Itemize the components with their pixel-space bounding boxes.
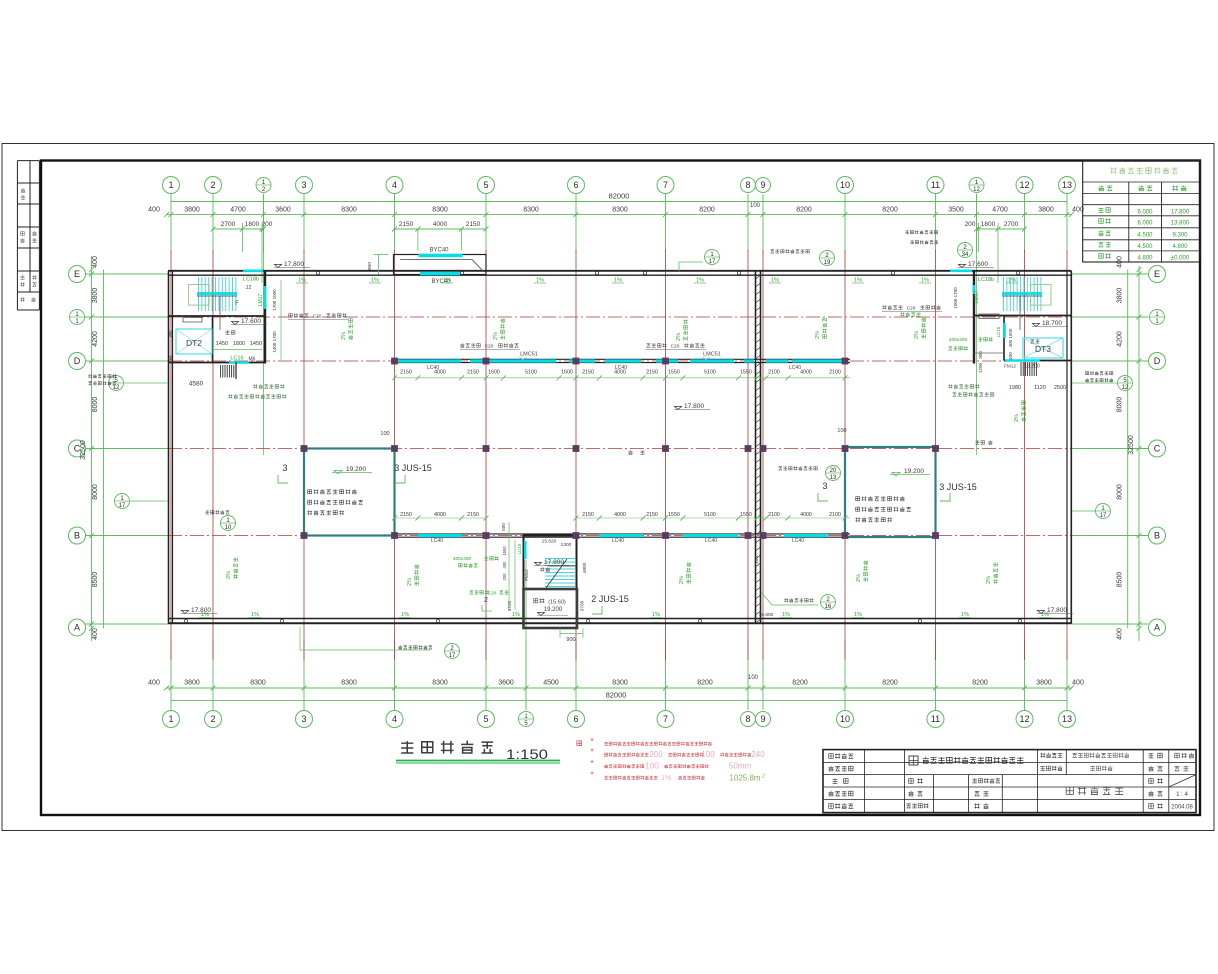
svg-text:A: A [1154, 623, 1160, 633]
svg-text:3800: 3800 [1117, 288, 1124, 304]
svg-text:4.800: 4.800 [1172, 244, 1188, 250]
svg-text:17: 17 [119, 503, 126, 509]
svg-text:1%: 1% [921, 278, 929, 284]
svg-text:19.200: 19.200 [544, 607, 563, 613]
svg-text:8300: 8300 [250, 680, 266, 687]
svg-text:1800: 1800 [233, 341, 245, 347]
svg-text:4.800: 4.800 [1137, 256, 1153, 262]
svg-text:B: B [1154, 531, 1160, 541]
svg-text:LC18b: LC18b [978, 277, 994, 283]
svg-text:8300: 8300 [612, 680, 628, 687]
svg-text:1%: 1% [961, 612, 969, 618]
svg-text:4.500: 4.500 [1137, 233, 1153, 239]
svg-text:2150: 2150 [582, 512, 594, 518]
svg-text:DT3: DT3 [1035, 344, 1051, 354]
svg-text:3700: 3700 [580, 600, 586, 611]
svg-text:8300: 8300 [341, 680, 357, 687]
svg-text:3: 3 [282, 463, 287, 473]
svg-text:M6: M6 [249, 357, 256, 363]
svg-text:1800: 1800 [981, 221, 996, 228]
svg-text:13: 13 [1062, 180, 1072, 190]
svg-text:8000: 8000 [1117, 484, 1124, 500]
svg-text:2100: 2100 [829, 370, 841, 376]
svg-text:C20: C20 [488, 591, 497, 596]
svg-text:100: 100 [380, 431, 389, 437]
svg-text:7: 7 [663, 180, 668, 190]
svg-text:1700 1000: 1700 1000 [272, 289, 277, 311]
svg-text:8200: 8200 [699, 207, 715, 214]
svg-text:19.200: 19.200 [346, 466, 366, 473]
svg-text:FM12: FM12 [1004, 364, 1016, 369]
svg-text:300: 300 [168, 330, 173, 338]
svg-text:LM17: LM17 [974, 291, 980, 304]
svg-text:1%: 1% [614, 278, 622, 284]
svg-text:19.200: 19.200 [904, 468, 924, 475]
svg-text:4200: 4200 [92, 331, 99, 347]
svg-text:4000: 4000 [614, 512, 626, 518]
svg-text:1%: 1% [401, 612, 409, 618]
svg-text:2%: 2% [407, 578, 413, 586]
svg-text:8: 8 [745, 714, 750, 724]
svg-text:16: 16 [825, 604, 832, 610]
svg-text:1120: 1120 [1034, 385, 1046, 391]
svg-text:100: 100 [748, 675, 759, 681]
svg-text:2150: 2150 [466, 221, 481, 228]
svg-text:9: 9 [760, 180, 765, 190]
svg-text:10: 10 [225, 525, 232, 531]
svg-text:1%: 1% [652, 612, 660, 618]
svg-text:5100: 5100 [704, 370, 716, 376]
svg-text:3800: 3800 [1038, 207, 1054, 214]
svg-text:6.000: 6.000 [1137, 210, 1153, 216]
svg-text:32500: 32500 [80, 440, 87, 460]
svg-text:4800: 4800 [582, 562, 588, 573]
svg-text:C20: C20 [313, 314, 322, 320]
svg-text:1%: 1% [251, 612, 259, 618]
svg-text:1550: 1550 [668, 512, 680, 518]
svg-text:400: 400 [1072, 680, 1084, 687]
svg-text:1025.8m: 1025.8m [729, 774, 760, 783]
svg-text:2100: 2100 [768, 370, 780, 376]
svg-text:3600: 3600 [275, 207, 291, 214]
svg-text:2100: 2100 [829, 512, 841, 518]
svg-text:400: 400 [1008, 352, 1013, 360]
svg-text:1550: 1550 [668, 370, 680, 376]
svg-text:8: 8 [745, 180, 750, 190]
svg-text:1%: 1% [661, 775, 671, 782]
svg-text:8300: 8300 [341, 207, 357, 214]
svg-text:C20: C20 [485, 344, 494, 350]
svg-text:3600: 3600 [498, 680, 514, 687]
svg-text:2150: 2150 [399, 221, 414, 228]
svg-text:LC15: LC15 [517, 543, 522, 554]
svg-text:100: 100 [837, 428, 846, 434]
svg-text:4700: 4700 [992, 207, 1008, 214]
svg-text:1300: 1300 [561, 542, 572, 548]
svg-text:FM12: FM12 [524, 569, 529, 581]
svg-text:4.500: 4.500 [1137, 244, 1153, 250]
svg-text:200: 200 [649, 750, 663, 759]
svg-text:500: 500 [501, 523, 506, 531]
svg-text:8300: 8300 [612, 207, 628, 214]
svg-text:8500: 8500 [1117, 572, 1124, 588]
svg-text:17.800: 17.800 [1171, 210, 1190, 216]
svg-text:400: 400 [92, 628, 99, 640]
svg-text:20: 20 [830, 468, 837, 474]
svg-text:BYC40: BYC40 [429, 248, 449, 254]
svg-text:17.800: 17.800 [284, 261, 304, 268]
svg-text:1%: 1% [536, 278, 544, 284]
svg-text:8200: 8200 [972, 680, 988, 687]
svg-text:4000: 4000 [434, 512, 446, 518]
svg-text:100: 100 [701, 750, 715, 759]
svg-text:400x400: 400x400 [453, 556, 472, 562]
svg-text:17.800: 17.800 [544, 559, 564, 566]
svg-text:100: 100 [754, 556, 760, 564]
svg-text:8000: 8000 [92, 397, 99, 413]
svg-text:300: 300 [978, 351, 983, 359]
svg-text:32500: 32500 [1128, 435, 1135, 455]
svg-text:2: 2 [484, 597, 488, 604]
svg-text:1%: 1% [512, 612, 520, 618]
svg-text:A: A [74, 623, 80, 633]
svg-text:C20: C20 [671, 344, 680, 350]
svg-text:1%: 1% [854, 612, 862, 618]
svg-text:C20: C20 [907, 306, 916, 312]
svg-text:50mm: 50mm [729, 762, 752, 771]
svg-text:2%: 2% [676, 333, 682, 341]
svg-text:1550: 1550 [740, 512, 752, 518]
svg-text:3800: 3800 [1036, 680, 1052, 687]
svg-text:400x400: 400x400 [949, 337, 968, 343]
svg-text:400: 400 [148, 680, 160, 687]
svg-text:50: 50 [168, 355, 173, 360]
svg-text:*: * [590, 759, 593, 768]
svg-text:12: 12 [113, 385, 120, 391]
svg-text:5: 5 [483, 714, 488, 724]
svg-text:400: 400 [92, 256, 99, 268]
svg-text:13.800: 13.800 [1171, 221, 1190, 227]
svg-text:240: 240 [751, 750, 765, 759]
svg-text:1%: 1% [782, 612, 790, 618]
svg-text:7: 7 [663, 714, 668, 724]
svg-text:13: 13 [1062, 714, 1072, 724]
svg-text:2150: 2150 [467, 370, 479, 376]
svg-text:4500: 4500 [543, 680, 559, 687]
svg-text:4700: 4700 [230, 207, 246, 214]
svg-text:4000: 4000 [800, 370, 812, 376]
svg-text:3800: 3800 [184, 207, 200, 214]
svg-text:2%: 2% [914, 331, 920, 339]
svg-text:4: 4 [392, 714, 397, 724]
svg-text:10: 10 [840, 180, 850, 190]
svg-text:2150: 2150 [646, 370, 658, 376]
svg-text:C: C [1154, 444, 1161, 454]
svg-text:1980: 1980 [1009, 385, 1021, 391]
svg-text:200: 200 [502, 573, 507, 581]
svg-text:1200: 1200 [978, 362, 983, 373]
svg-text:2150: 2150 [646, 512, 658, 518]
svg-text:1600: 1600 [561, 370, 573, 376]
svg-text:1: 1 [168, 180, 173, 190]
svg-text:17: 17 [709, 259, 716, 265]
svg-text:17.600: 17.600 [968, 261, 988, 268]
svg-text:8500: 8500 [92, 572, 99, 588]
svg-text:1450: 1450 [216, 341, 228, 347]
svg-text:8300: 8300 [432, 207, 448, 214]
svg-text:8200: 8200 [796, 207, 812, 214]
svg-text:1600: 1600 [488, 370, 500, 376]
svg-text:200: 200 [965, 221, 976, 228]
svg-text:3800: 3800 [184, 680, 200, 687]
svg-text:2 JUS-15: 2 JUS-15 [591, 594, 629, 604]
svg-text:5: 5 [483, 180, 488, 190]
svg-text:LC40: LC40 [705, 538, 717, 544]
svg-text:18.700: 18.700 [1042, 320, 1062, 327]
svg-text:12: 12 [1019, 180, 1029, 190]
svg-text:LC40: LC40 [792, 538, 804, 544]
svg-text:F: F [235, 301, 239, 307]
svg-text:100: 100 [750, 203, 761, 209]
svg-text:6: 6 [573, 180, 578, 190]
svg-text:E: E [1154, 269, 1160, 279]
svg-text:34: 34 [962, 252, 969, 258]
svg-text:2500: 2500 [1054, 385, 1066, 391]
svg-text:2%: 2% [679, 576, 685, 584]
svg-text:LC16: LC16 [230, 356, 243, 362]
svg-text:5100: 5100 [704, 512, 716, 518]
svg-text:5100: 5100 [525, 370, 537, 376]
svg-text:17.800: 17.800 [1047, 607, 1067, 614]
svg-text:800: 800 [367, 262, 373, 270]
svg-text:4000: 4000 [434, 370, 446, 376]
svg-text:LMC51: LMC51 [703, 352, 721, 358]
svg-text:3700: 3700 [507, 600, 513, 611]
svg-text:8300: 8300 [523, 207, 539, 214]
svg-text:4000: 4000 [614, 370, 626, 376]
svg-text:LM17: LM17 [258, 294, 264, 307]
svg-text:±0.000: ±0.000 [1171, 256, 1190, 262]
svg-text:2: 2 [210, 714, 215, 724]
svg-text:(15.60): (15.60) [548, 600, 566, 606]
svg-text:16.600: 16.600 [759, 612, 774, 618]
svg-text:9.300: 9.300 [1172, 233, 1188, 239]
svg-text:1%: 1% [371, 278, 379, 284]
svg-text:1%: 1% [1008, 278, 1016, 284]
svg-text:LMC51: LMC51 [520, 352, 538, 358]
svg-text:3: 3 [301, 714, 306, 724]
svg-text:2%: 2% [493, 332, 499, 340]
svg-text:82000: 82000 [606, 691, 627, 700]
svg-text:2%: 2% [986, 576, 992, 584]
svg-text:12: 12 [1122, 385, 1129, 391]
svg-text:15.620: 15.620 [542, 539, 557, 545]
svg-text:19: 19 [824, 260, 831, 266]
svg-text:8200: 8200 [882, 207, 898, 214]
svg-text:400: 400 [502, 561, 507, 569]
svg-text:1%: 1% [298, 278, 306, 284]
svg-text:1%: 1% [696, 278, 704, 284]
svg-text:2150: 2150 [467, 512, 479, 518]
svg-text:3800: 3800 [92, 288, 99, 304]
svg-text:1: 1 [168, 714, 173, 724]
svg-text:*: * [590, 748, 593, 757]
svg-text:LC15: LC15 [996, 326, 1001, 337]
svg-text:1 : 4: 1 : 4 [1176, 792, 1188, 798]
svg-text:11: 11 [931, 180, 940, 190]
svg-text:1000 1700: 1000 1700 [953, 287, 958, 309]
svg-text:4: 4 [392, 180, 397, 190]
svg-text:6: 6 [573, 714, 578, 724]
svg-text:*: * [590, 737, 593, 746]
svg-text:LC40: LC40 [612, 538, 624, 544]
svg-text:3500: 3500 [948, 207, 964, 214]
svg-text:9: 9 [760, 714, 765, 724]
svg-text:LC40: LC40 [431, 538, 443, 544]
svg-text:6.000: 6.000 [1137, 221, 1153, 227]
svg-text:900: 900 [566, 637, 575, 643]
svg-text:17.800: 17.800 [191, 607, 211, 614]
svg-text:D: D [74, 356, 81, 366]
svg-text:2100: 2100 [768, 512, 780, 518]
svg-text:17: 17 [1100, 513, 1107, 519]
svg-text:8000: 8000 [1117, 397, 1124, 413]
svg-text:*: * [590, 771, 593, 780]
svg-text:4000: 4000 [433, 221, 448, 228]
svg-text:2%: 2% [815, 331, 821, 339]
svg-text:17.600: 17.600 [241, 318, 261, 325]
svg-text:17: 17 [449, 653, 456, 659]
svg-text:D: D [1154, 356, 1161, 366]
svg-text:1500: 1500 [502, 546, 507, 556]
svg-text:8200: 8200 [792, 680, 808, 687]
svg-text:E: E [74, 269, 80, 279]
svg-text:3: 3 [822, 481, 827, 491]
svg-text:400: 400 [148, 207, 160, 214]
svg-text:2700: 2700 [1004, 221, 1019, 228]
svg-text:2%: 2% [1014, 414, 1020, 422]
svg-text:12: 12 [1019, 714, 1029, 724]
svg-text:1%: 1% [771, 278, 779, 284]
svg-text:2700: 2700 [221, 221, 236, 228]
svg-text:1800: 1800 [245, 221, 260, 228]
svg-text:2150: 2150 [582, 370, 594, 376]
svg-text:4200: 4200 [1117, 331, 1124, 347]
svg-text:8300: 8300 [432, 680, 448, 687]
svg-text:1%: 1% [443, 278, 451, 284]
svg-text:4000: 4000 [800, 512, 812, 518]
svg-text:1400 1700: 1400 1700 [272, 331, 277, 353]
svg-text:18.200: 18.200 [1024, 364, 1040, 370]
svg-text:1450: 1450 [250, 341, 262, 347]
svg-text:2150: 2150 [400, 512, 412, 518]
svg-text:2%: 2% [341, 332, 347, 340]
svg-text:400 1500: 400 1500 [1008, 328, 1013, 347]
svg-text:3 JUS-15: 3 JUS-15 [939, 482, 977, 492]
svg-text:2150: 2150 [400, 370, 412, 376]
svg-text:2%: 2% [856, 574, 862, 582]
svg-text:2: 2 [762, 774, 765, 780]
svg-text:DT2: DT2 [186, 338, 202, 348]
svg-text:2: 2 [210, 180, 215, 190]
svg-text:8200: 8200 [882, 680, 898, 687]
svg-text:100: 100 [645, 762, 659, 771]
svg-text:.12: .12 [245, 285, 252, 291]
svg-text:1550: 1550 [740, 370, 752, 376]
svg-text:8200: 8200 [697, 680, 713, 687]
svg-text:4580: 4580 [189, 381, 204, 388]
svg-text:11: 11 [931, 714, 940, 724]
svg-text:10: 10 [840, 714, 850, 724]
svg-text:12: 12 [973, 187, 980, 193]
svg-text:B: B [74, 531, 80, 541]
svg-text:2004.08: 2004.08 [1171, 805, 1193, 811]
svg-text:2%: 2% [226, 571, 232, 579]
svg-text:13: 13 [830, 475, 837, 481]
svg-text:400: 400 [1117, 628, 1124, 640]
svg-text:3: 3 [301, 180, 306, 190]
svg-text:8000: 8000 [92, 484, 99, 500]
svg-text:1%: 1% [854, 278, 862, 284]
svg-text:LC18b: LC18b [243, 277, 259, 283]
svg-text:3 JUS-15: 3 JUS-15 [394, 463, 432, 473]
svg-text:17.800: 17.800 [684, 403, 704, 410]
svg-text:82000: 82000 [609, 192, 630, 201]
